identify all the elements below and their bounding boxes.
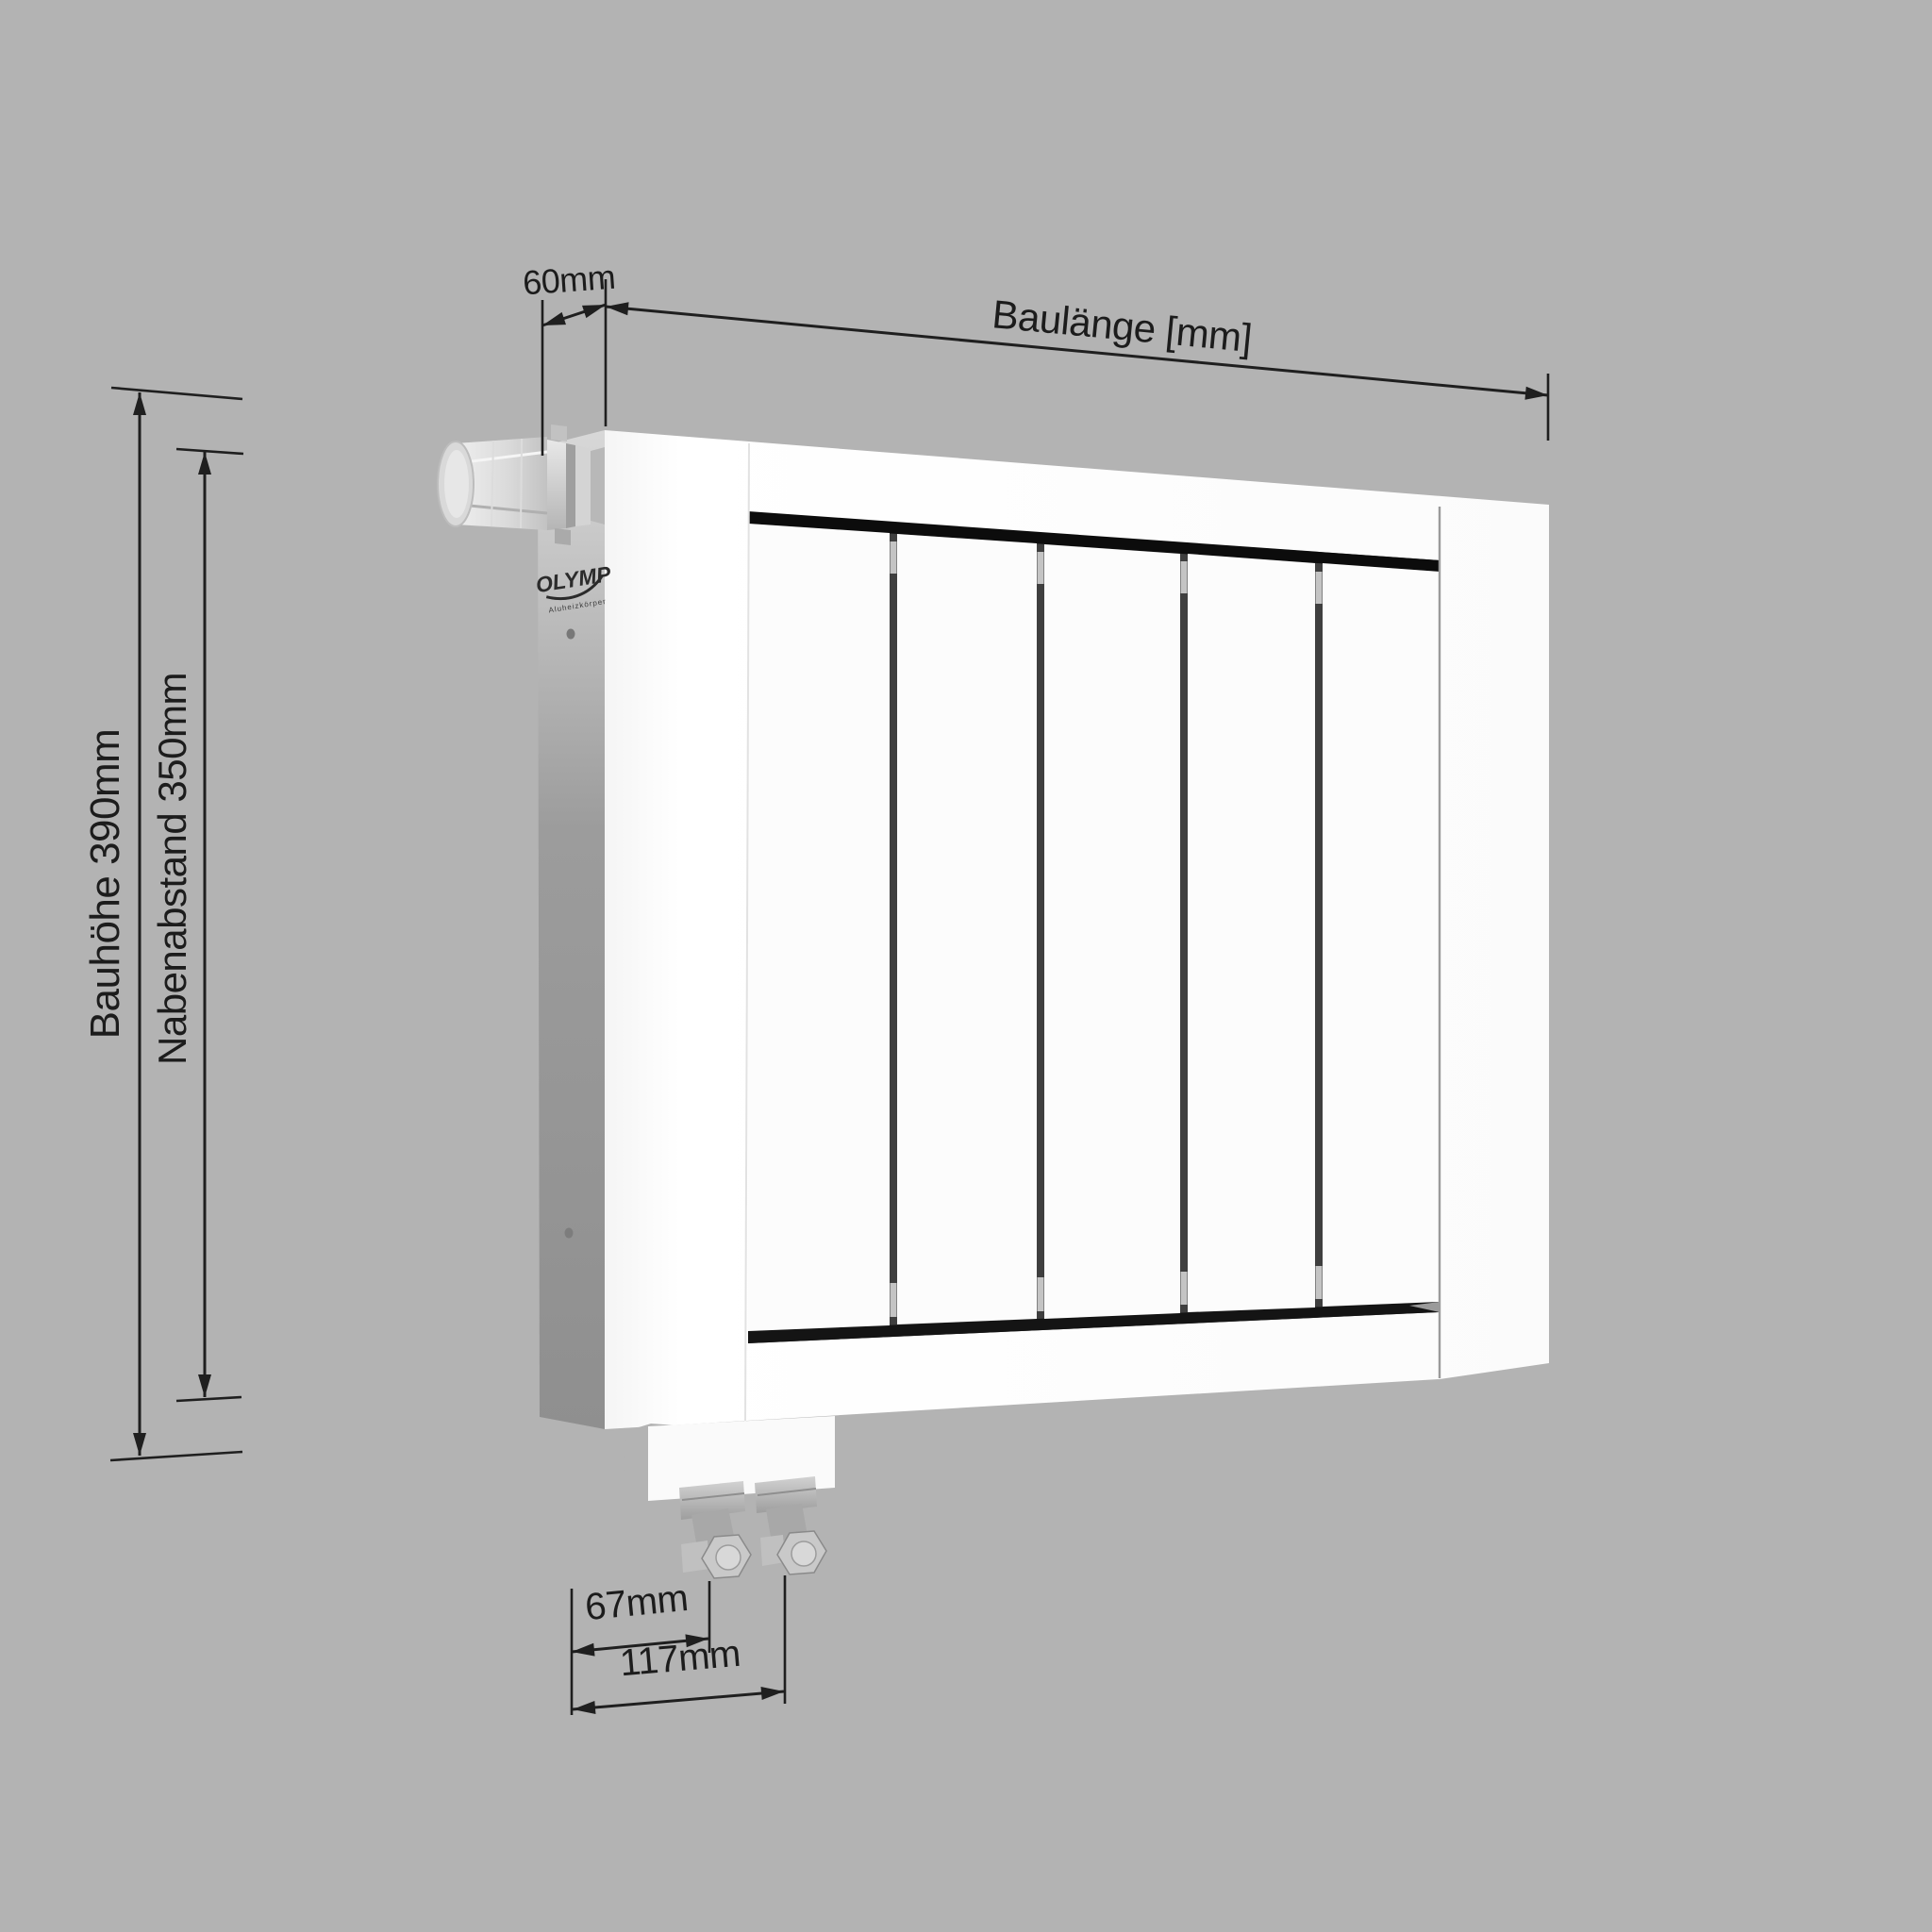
screw-hole (567, 629, 575, 640)
dimension-depth-label: 60mm (522, 258, 617, 303)
radiator-section-panel (748, 524, 890, 1331)
dimension-height-label: Bauhöhe 390mm (82, 729, 128, 1040)
radiator-section-panel (897, 534, 1037, 1324)
radiator-section-panel (1323, 563, 1440, 1307)
radiator-section-panel (1044, 544, 1180, 1319)
section-connector (1181, 561, 1188, 593)
valve-collar-ring-dark (566, 443, 575, 528)
screw-hole (565, 1228, 574, 1239)
section-connector (1038, 1277, 1044, 1311)
section-connector (1181, 1272, 1188, 1305)
dimension-hub-spacing-label: Nabenabstand 350mm (150, 673, 194, 1065)
section-connector (891, 1283, 897, 1317)
valve-collar-ring (575, 445, 591, 526)
technical-drawing: OLYMP Aluheizkörper (0, 0, 1932, 1932)
valve-end-cap (791, 1541, 816, 1566)
thermostat-knob-face-inner (444, 450, 469, 518)
section-connector (1038, 552, 1044, 584)
valve-collar (547, 440, 566, 530)
section-connector (1316, 1266, 1323, 1299)
section-connector (1316, 572, 1323, 604)
knob-facet (521, 439, 522, 528)
valve-end-cap (716, 1545, 741, 1570)
valve-adapter (591, 447, 605, 525)
radiator: OLYMP Aluheizkörper (534, 430, 1549, 1429)
valve-tab-top (551, 425, 567, 441)
radiator-section-panel (1188, 554, 1315, 1312)
section-connector (891, 541, 897, 574)
valve-tab-bottom (555, 528, 571, 545)
